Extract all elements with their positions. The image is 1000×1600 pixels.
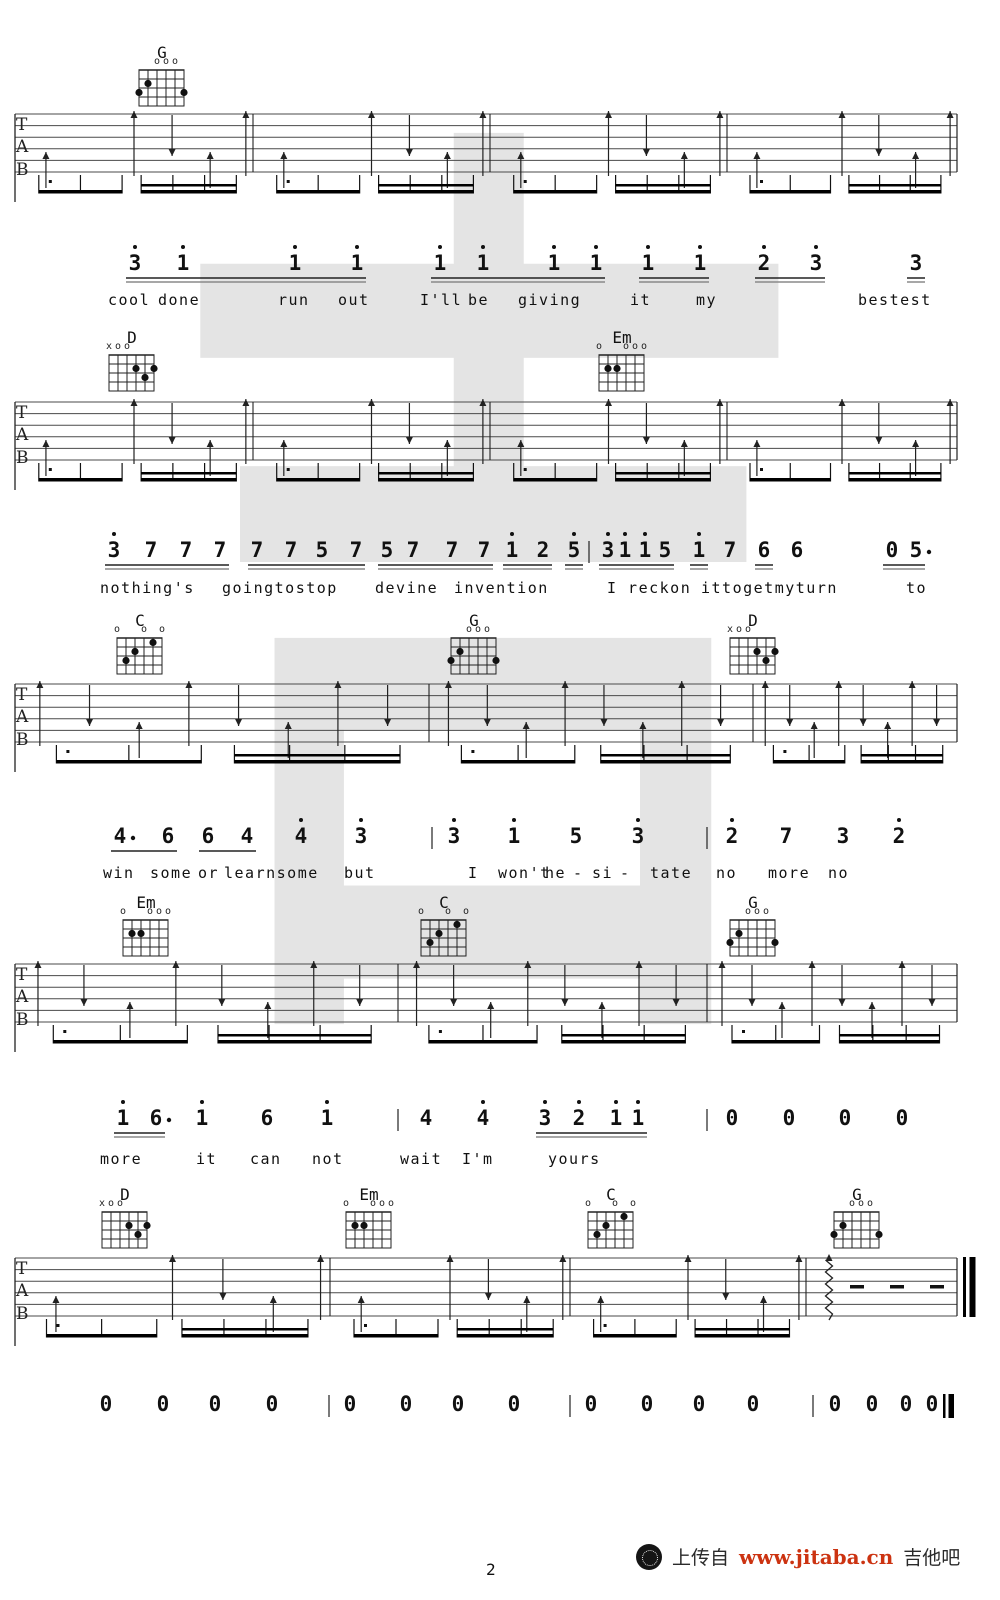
text-overlay: GoooTAB3111111111233cooldonerunoutI'llbe… (0, 0, 1000, 1600)
open-mute-marker: o (154, 56, 160, 67)
melody-number: 6 (261, 1106, 274, 1130)
open-mute-marker: o (641, 341, 647, 352)
open-mute-marker: o (745, 624, 751, 635)
open-mute-marker: o (475, 624, 481, 635)
tab-clef-letter: B (16, 730, 29, 750)
melody-number: 0 (585, 1392, 598, 1416)
melody-number: 7 (214, 538, 227, 562)
open-mute-marker: o (108, 1198, 114, 1209)
melody-number: 3 (837, 824, 850, 848)
melody-number: 4 (114, 824, 127, 848)
melody-number: 0 (508, 1392, 521, 1416)
melody-number: 7 (350, 538, 363, 562)
lyric-word: more (768, 864, 810, 882)
lyric-word: goingtostop (222, 579, 338, 597)
open-mute-marker: x (106, 341, 112, 352)
open-mute-marker: o (370, 1198, 376, 1209)
open-mute-marker: o (156, 906, 162, 917)
melody-number: 1 (610, 1106, 623, 1130)
melody-number: 4 (420, 1106, 433, 1130)
lyric-word: run (278, 291, 310, 309)
melody-number: 3 (108, 538, 121, 562)
melody-number: 1 (639, 538, 652, 562)
open-mute-marker: o (745, 906, 751, 917)
open-mute-marker: o (114, 624, 120, 635)
lyric-word: ittogetmyturn (701, 579, 838, 597)
melody-number: 4 (295, 824, 308, 848)
lyric-word: yours (548, 1150, 601, 1168)
tab-clef-letter: T (16, 965, 27, 985)
lyric-word: nothing's (100, 579, 195, 597)
lyric-word: some (150, 864, 192, 882)
melody-number: 3 (355, 824, 368, 848)
open-mute-marker: o (858, 1198, 864, 1209)
melody-number: 0 (829, 1392, 842, 1416)
lyric-word: win (103, 864, 135, 882)
melody-number: 5 (381, 538, 394, 562)
melody-number: 1 (351, 251, 364, 275)
lyric-word: it (630, 291, 651, 309)
melody-number: 6 (758, 538, 771, 562)
open-mute-marker: o (165, 906, 171, 917)
open-mute-marker: o (632, 341, 638, 352)
tab-clef-letter: A (16, 987, 28, 1007)
melody-number: 3 (602, 538, 615, 562)
melody-number: 2 (893, 824, 906, 848)
open-mute-marker: o (623, 341, 629, 352)
melody-number: 1 (632, 1106, 645, 1130)
lyric-word: done (158, 291, 200, 309)
melody-number: 0 (900, 1392, 913, 1416)
open-mute-marker: o (867, 1198, 873, 1209)
lyric-word: cool (108, 291, 150, 309)
melody-number: 0 (266, 1392, 279, 1416)
lyric-word: I'm (462, 1150, 494, 1168)
tab-clef-letter: T (16, 115, 27, 135)
lyric-word: or (198, 864, 219, 882)
open-mute-marker: o (596, 341, 602, 352)
lyric-word: but (344, 864, 376, 882)
melody-number: 1 (694, 251, 707, 275)
lyric-word: no (716, 864, 737, 882)
melody-number: 0 (926, 1392, 939, 1416)
lyric-word: I (468, 864, 479, 882)
melody-number: 0 (726, 1106, 739, 1130)
melody-number: 3 (632, 824, 645, 848)
melody-number: 2 (758, 251, 771, 275)
lyric-word: out (338, 291, 370, 309)
open-mute-marker: o (466, 624, 472, 635)
open-mute-marker: o (388, 1198, 394, 1209)
lyric-word: more (100, 1150, 142, 1168)
melody-number: 2 (726, 824, 739, 848)
melody-number: 0 (866, 1392, 879, 1416)
melody-number: 3 (810, 251, 823, 275)
tab-clef-letter: B (16, 1304, 29, 1324)
melody-number: 7 (780, 824, 793, 848)
lyric-word: no (828, 864, 849, 882)
melody-number: 1 (506, 538, 519, 562)
melody-number: 7 (180, 538, 193, 562)
melody-number: 1 (619, 538, 632, 562)
melody-number: 0 (693, 1392, 706, 1416)
lyric-word: it (196, 1150, 217, 1168)
tab-clef-letter: T (16, 1259, 27, 1279)
melody-number: 3 (910, 251, 923, 275)
melody-number: 2 (537, 538, 550, 562)
sheet-music-page: 吉 GoooTAB3111111111233cooldonerunoutI'll… (0, 0, 1000, 1600)
lyric-word: not (312, 1150, 344, 1168)
melody-number: 0 (344, 1392, 357, 1416)
lyric-word: to (906, 579, 927, 597)
melody-number: 1 (321, 1106, 334, 1130)
melody-number: 5 (910, 538, 923, 562)
open-mute-marker: o (849, 1198, 855, 1209)
lyric-word: I reckon (607, 579, 691, 597)
open-mute-marker: o (147, 906, 153, 917)
melody-number: 0 (747, 1392, 760, 1416)
tab-clef-letter: B (16, 1010, 29, 1030)
melody-number: 0 (452, 1392, 465, 1416)
open-mute-marker: o (117, 1198, 123, 1209)
open-mute-marker: o (754, 906, 760, 917)
melody-number: 0 (783, 1106, 796, 1130)
open-mute-marker: o (159, 624, 165, 635)
melody-number: 3 (539, 1106, 552, 1130)
lyric-word: giving (518, 291, 581, 309)
lyric-word: devine (375, 579, 438, 597)
footer-upload-text: 上传自 (672, 1543, 729, 1570)
melody-number: 7 (145, 538, 158, 562)
open-mute-marker: o (630, 1198, 636, 1209)
melody-number: 2 (573, 1106, 586, 1130)
open-mute-marker: o (612, 1198, 618, 1209)
melody-number: 0 (896, 1106, 909, 1130)
melody-number: 1 (693, 538, 706, 562)
tab-clef-letter: B (16, 448, 29, 468)
footer-site-name: 吉他吧 (903, 1543, 960, 1570)
melody-number: 3 (129, 251, 142, 275)
lyric-word: si (592, 864, 613, 882)
melody-number: 1 (177, 251, 190, 275)
melody-number: 0 (209, 1392, 222, 1416)
lyric-word: learnsome (224, 864, 319, 882)
tab-clef-letter: A (16, 137, 28, 157)
melody-number: 0 (400, 1392, 413, 1416)
open-mute-marker: o (141, 624, 147, 635)
open-mute-marker: o (115, 341, 121, 352)
open-mute-marker: x (727, 624, 733, 635)
melody-number: 1 (590, 251, 603, 275)
page-number: 2 (486, 1560, 496, 1579)
open-mute-marker: x (99, 1198, 105, 1209)
melody-number: 1 (289, 251, 302, 275)
tab-clef-letter: B (16, 160, 29, 180)
open-mute-marker: o (172, 56, 178, 67)
melody-number: 7 (446, 538, 459, 562)
melody-number: 0 (886, 538, 899, 562)
open-mute-marker: o (463, 906, 469, 917)
melody-number: 1 (508, 824, 521, 848)
open-mute-marker: o (585, 1198, 591, 1209)
melody-number: 7 (478, 538, 491, 562)
melody-number: 0 (641, 1392, 654, 1416)
melody-number: 6 (162, 824, 175, 848)
open-mute-marker: o (484, 624, 490, 635)
lyric-word: he (545, 864, 566, 882)
melody-number: 6 (202, 824, 215, 848)
melody-number: 7 (407, 538, 420, 562)
lyric-word: my (696, 291, 717, 309)
melody-number: 4 (477, 1106, 490, 1130)
lyric-word: won't (498, 864, 551, 882)
melody-number: 5 (659, 538, 672, 562)
lyric-word: bestest (858, 291, 932, 309)
open-mute-marker: o (445, 906, 451, 917)
lyric-word: be (468, 291, 489, 309)
melody-number: 1 (477, 251, 490, 275)
melody-number: 0 (157, 1392, 170, 1416)
lyric-word: invention (454, 579, 549, 597)
open-mute-marker: o (736, 624, 742, 635)
open-mute-marker: o (418, 906, 424, 917)
tab-clef-letter: T (16, 685, 27, 705)
lyric-word: wait (400, 1150, 442, 1168)
melody-number: 0 (100, 1392, 113, 1416)
footer-site-url: www.jitaba.cn (739, 1545, 893, 1569)
melody-number: 5 (570, 824, 583, 848)
melody-number: 5 (568, 538, 581, 562)
melody-number: 7 (285, 538, 298, 562)
open-mute-marker: o (124, 341, 130, 352)
lyric-word: I'll (420, 291, 462, 309)
open-mute-marker: o (763, 906, 769, 917)
footer: 上传自 www.jitaba.cn 吉他吧 (636, 1543, 960, 1570)
melody-number: 1 (642, 251, 655, 275)
lyric-word: tate (650, 864, 692, 882)
tab-clef-letter: A (16, 707, 28, 727)
melody-number: 3 (448, 824, 461, 848)
open-mute-marker: o (120, 906, 126, 917)
open-mute-marker: o (343, 1198, 349, 1209)
melody-number: 5 (316, 538, 329, 562)
guitar-site-logo-icon (636, 1544, 662, 1570)
lyric-word: - (573, 864, 584, 882)
tab-clef-letter: T (16, 403, 27, 423)
open-mute-marker: o (163, 56, 169, 67)
melody-number: 6 (791, 538, 804, 562)
tab-clef-letter: A (16, 425, 28, 445)
open-mute-marker: o (379, 1198, 385, 1209)
lyric-word: - (620, 864, 631, 882)
tab-clef-letter: A (16, 1281, 28, 1301)
melody-number: 7 (251, 538, 264, 562)
melody-number: 1 (117, 1106, 130, 1130)
melody-number: 0 (839, 1106, 852, 1130)
melody-number: 1 (196, 1106, 209, 1130)
melody-number: 7 (724, 538, 737, 562)
melody-number: 1 (434, 251, 447, 275)
lyric-word: can (250, 1150, 282, 1168)
melody-number: 1 (548, 251, 561, 275)
melody-number: 6 (150, 1106, 163, 1130)
melody-number: 4 (241, 824, 254, 848)
